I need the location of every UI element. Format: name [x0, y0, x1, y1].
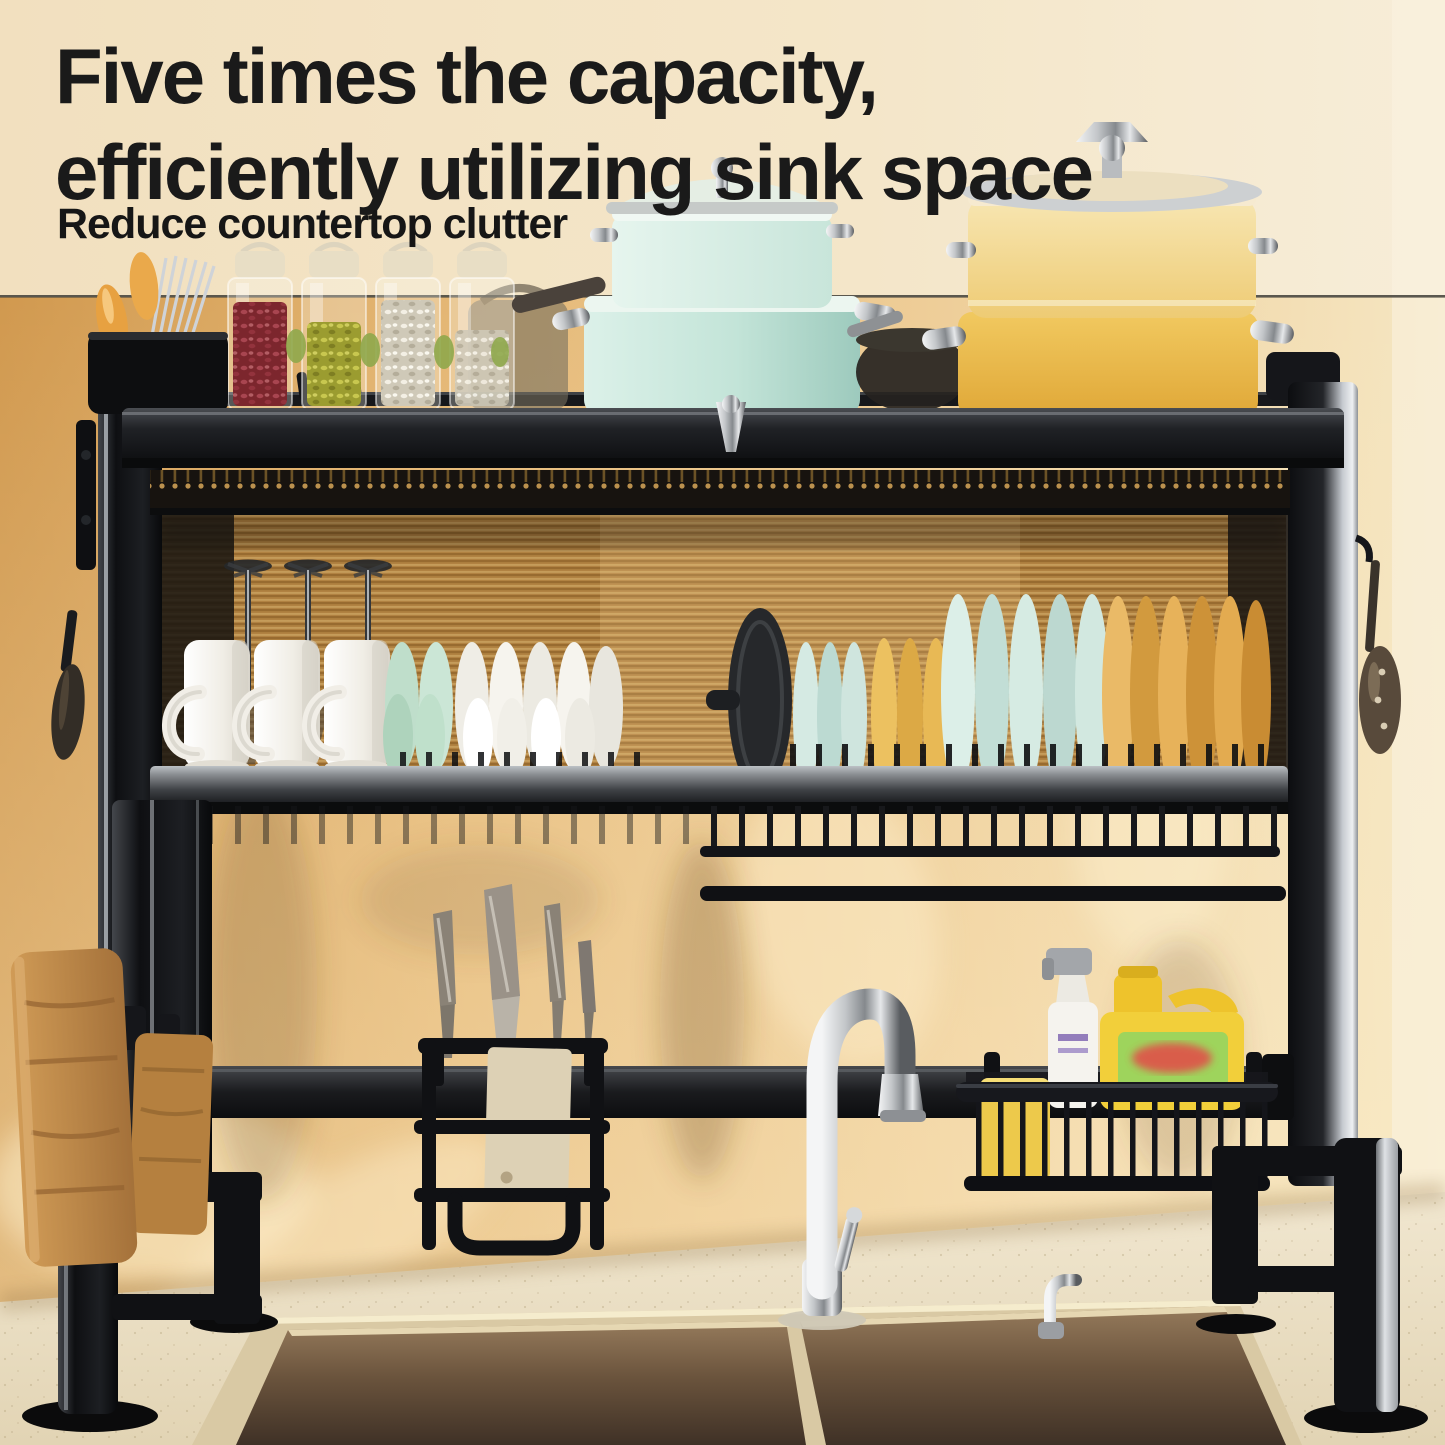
faucet-spout	[878, 1074, 924, 1116]
headline-line-1: Five times the capacity,	[55, 28, 1092, 124]
hanging-tier-bar	[700, 886, 1286, 901]
jar-white-beans	[381, 300, 435, 406]
hanging-wires-right	[700, 806, 1280, 850]
cutting-board-small	[129, 1033, 214, 1236]
product-image: Five times the capacity, efficiently uti…	[0, 0, 1445, 1445]
mugs	[169, 640, 390, 772]
jar-olive-beans	[307, 322, 361, 406]
hanging-wires-left	[165, 806, 695, 844]
left-hook-plate	[76, 420, 96, 570]
subheadline: Reduce countertop clutter	[57, 200, 567, 249]
top-shelf-front	[122, 395, 1344, 515]
sink-bowl-left	[236, 1321, 806, 1445]
wire-mesh-shelf	[150, 470, 1290, 512]
teal-pot-upper	[612, 214, 832, 308]
teal-pot-lower	[584, 302, 860, 414]
double-sink	[192, 1300, 1302, 1445]
jar-red-beans	[233, 302, 287, 406]
yellow-pot-lower	[958, 312, 1258, 416]
headline: Five times the capacity, efficiently uti…	[55, 28, 1092, 220]
lid-knob	[1099, 135, 1125, 161]
